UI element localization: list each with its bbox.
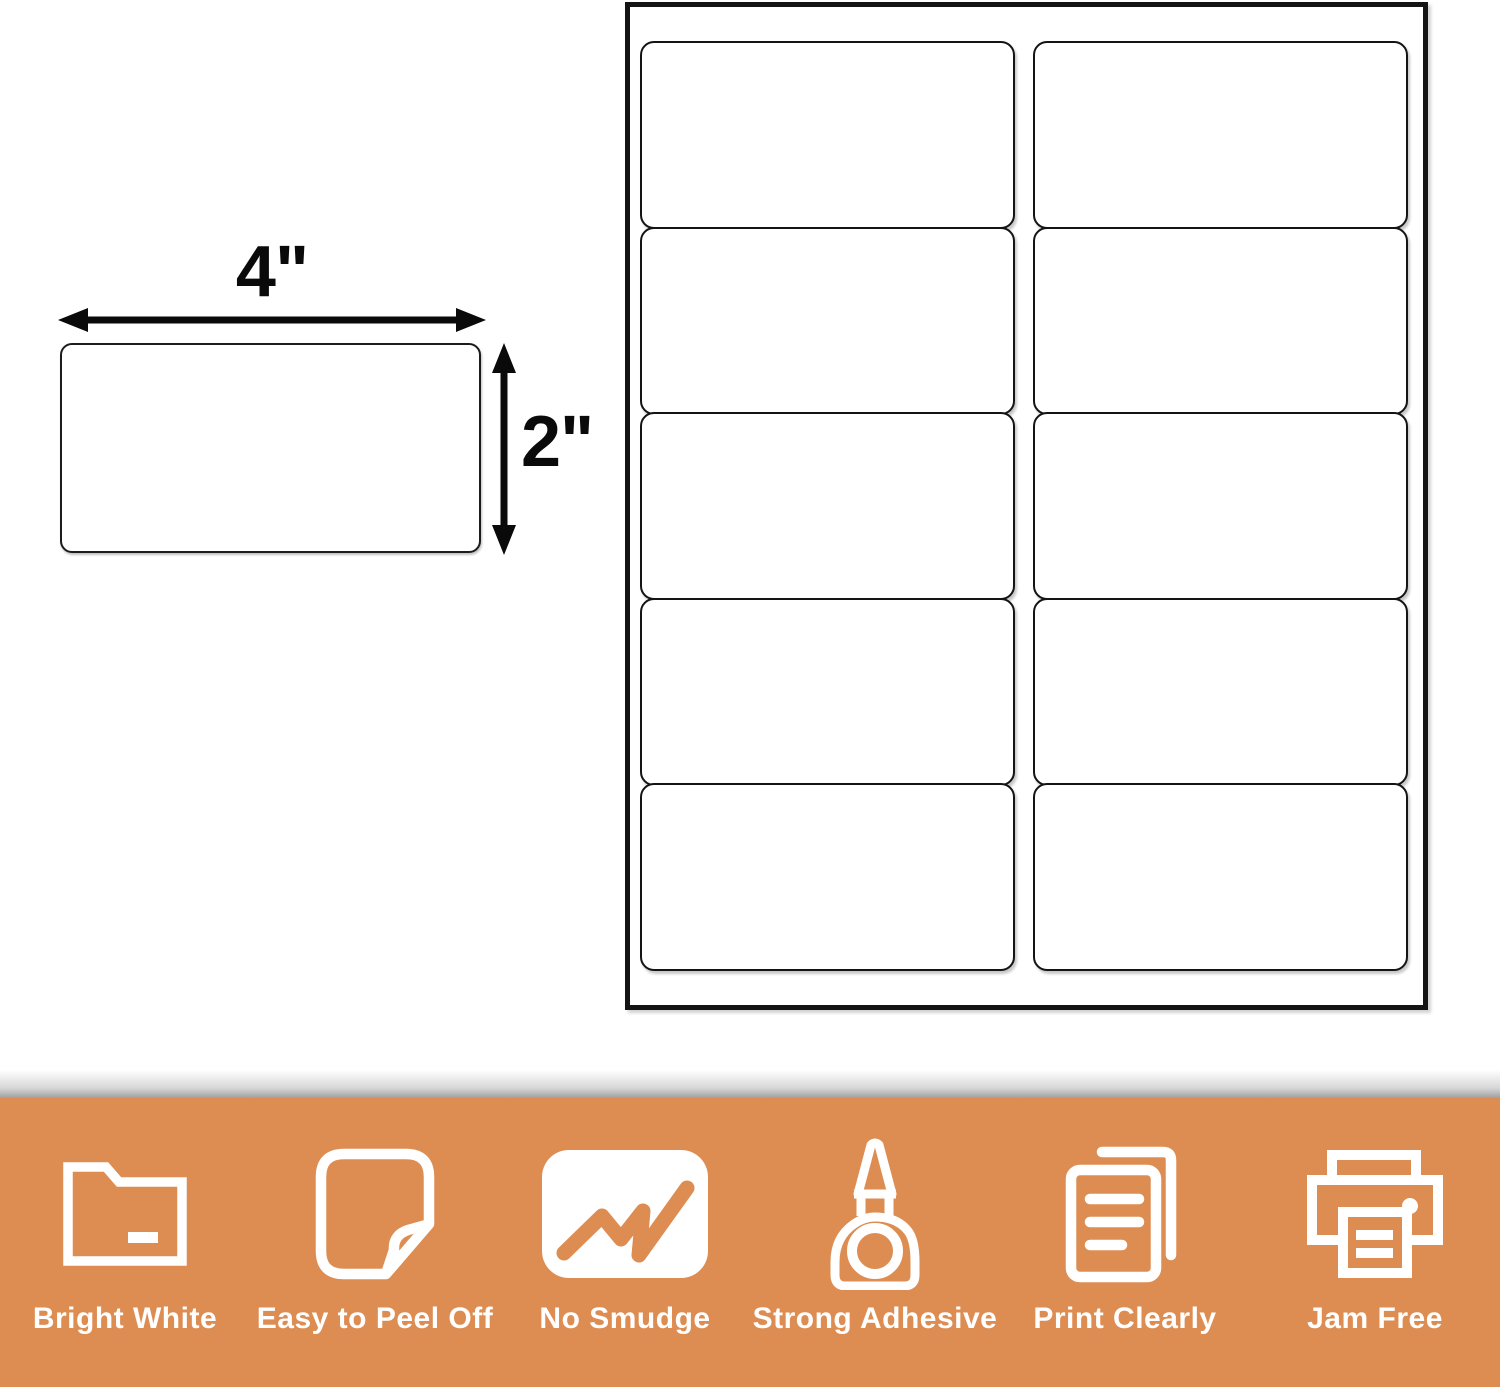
folder-icon — [62, 1148, 188, 1280]
documents-icon — [1062, 1148, 1188, 1280]
feature-easy-to-peel-off: Easy to Peel Off — [250, 1098, 500, 1387]
height-arrow-icon — [489, 342, 519, 556]
feature-jam-free: Jam Free — [1250, 1098, 1500, 1387]
height-dimension-label: 2" — [521, 406, 593, 478]
feature-bright-white: Bright White — [0, 1098, 250, 1387]
product-image: 4" 2" Bright White Easy to Peel Off — [0, 0, 1500, 1387]
feature-strong-adhesive: Strong Adhesive — [750, 1098, 1000, 1387]
single-label-outline — [60, 343, 481, 553]
banner-top-shadow — [0, 1070, 1500, 1098]
printer-icon — [1307, 1148, 1443, 1280]
label-cell — [1033, 412, 1408, 600]
feature-label: Print Clearly — [1033, 1304, 1216, 1334]
feature-label: Easy to Peel Off — [257, 1304, 493, 1334]
label-cell — [640, 41, 1015, 229]
feature-print-clearly: Print Clearly — [1000, 1098, 1250, 1387]
feature-label: Strong Adhesive — [753, 1304, 998, 1334]
label-cell — [640, 598, 1015, 786]
label-cell — [640, 227, 1015, 415]
label-cell — [1033, 41, 1408, 229]
label-sheet — [625, 2, 1428, 1010]
label-column — [640, 41, 1015, 971]
label-cell — [1033, 598, 1408, 786]
feature-label: Bright White — [33, 1304, 217, 1334]
marker-scribble-icon — [542, 1148, 708, 1280]
label-cell — [1033, 783, 1408, 971]
label-grid — [640, 41, 1408, 971]
feature-no-smudge: No Smudge — [500, 1098, 750, 1387]
features-banner: Bright White Easy to Peel Off No Smudge … — [0, 1098, 1500, 1387]
width-dimension-label: 4" — [57, 236, 487, 308]
label-cell — [640, 783, 1015, 971]
feature-label: No Smudge — [539, 1304, 710, 1334]
sticker-peel-icon — [314, 1148, 436, 1280]
label-column — [1033, 41, 1408, 971]
feature-label: Jam Free — [1307, 1304, 1443, 1334]
label-cell — [1033, 227, 1408, 415]
label-cell — [640, 412, 1015, 600]
glue-bottle-icon — [827, 1148, 923, 1280]
width-arrow-icon — [57, 305, 487, 335]
